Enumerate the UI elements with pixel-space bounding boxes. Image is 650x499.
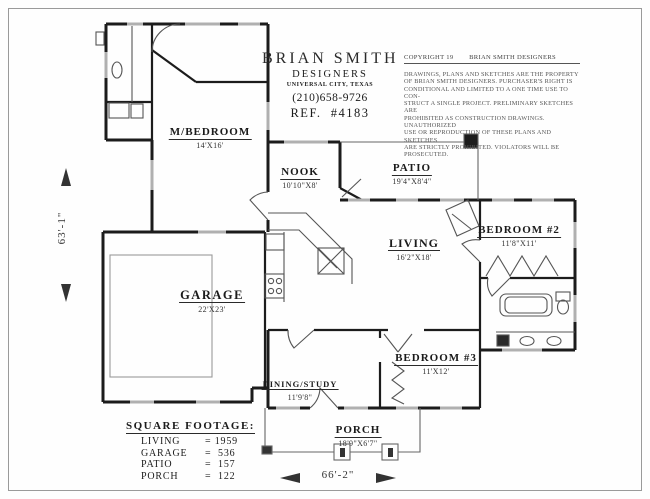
copyright-body: DRAWINGS, PLANS AND SKETCHES ARE THE PRO… [404,71,580,159]
square-footage-rows: LIVING = 1959 GARAGE = 536 PATIO = 157 P… [126,436,272,482]
table-row: GARAGE = 536 [141,448,272,460]
master-door-arc [250,192,268,220]
room-label-dining-study: DINING/STUDY 11'9'8" [262,374,339,402]
title-block: BRIAN SMITH DESIGNERS UNIVERSAL CITY, TE… [262,50,398,121]
drawing-sheet: BRIAN SMITH DESIGNERS UNIVERSAL CITY, TE… [0,0,650,499]
copyright-line: CONDITIONAL AND LIMITED TO A ONE TIME US… [404,86,580,101]
copyright-header: COPYRIGHT 19 BRIAN SMITH DESIGNERS [404,54,580,64]
bath-sink-2 [547,337,561,346]
room-label-living: LIVING 16'2"X18' [388,234,440,262]
bath-cabinet [497,335,509,346]
garage-slab-outline [110,255,212,377]
table-row: LIVING = 1959 [141,436,272,448]
bath-door-arc [487,278,510,296]
dim-arrow-up [61,168,71,186]
copyright-line: ARE STRICTLY PROHIBITED. VIOLATORS WILL … [404,144,580,159]
copyright-block: COPYRIGHT 19 BRIAN SMITH DESIGNERS DRAWI… [404,54,580,159]
brand-city: UNIVERSAL CITY, TEXAS [262,82,398,88]
copyright-line: OF BRIAN SMITH DESIGNERS. PURCHASER'S RI… [404,78,580,85]
overall-height-dimension: 63'-1" [56,197,70,259]
room-label-nook: NOOK 10'10"X8' [280,162,320,190]
room-label-bedroom-2: BEDROOM #2 11'8"X11' [477,220,561,248]
table-row: PATIO = 157 [141,459,272,471]
dryer [131,104,143,118]
room-label-master-bedroom: M/BEDROOM 14'X16' [169,122,252,150]
copyright-line: STRUCT A SINGLE PROJECT. PRELIMINARY SKE… [404,100,580,115]
utility-sink [112,62,122,78]
room-label-porch: PORCH 18'9"X6'7" [335,420,382,448]
copyright-year: COPYRIGHT 19 [404,54,453,61]
washer [109,103,129,118]
kitchen-pantry [266,234,284,250]
room-label-bedroom-3: BEDROOM #3 11'X12' [394,348,478,376]
brand-ref-number: REF. #4183 [262,106,398,121]
dim-arrow-left [280,473,300,483]
copyright-owner: BRIAN SMITH DESIGNERS [469,54,580,61]
dim-arrow-down [61,284,71,302]
dining-door-arc [288,330,314,348]
room-label-patio: PATIO 19'4"X8'4" [392,158,432,186]
fireplace [446,200,479,236]
room-label-garage: GARAGE 22'X23' [179,286,245,314]
table-row: PORCH = 122 [141,471,272,483]
bedroom2-closet-doors [486,256,558,276]
copyright-line: USE OR REPRODUCTION OF THESE PLANS AND S… [404,129,580,144]
exterior-vent [96,32,104,45]
overall-width-dimension: 66'-2" [306,469,370,481]
brand-phone: (210)658-9726 [262,92,398,104]
brand-name: BRIAN SMITH [262,50,398,68]
copyright-line: DRAWINGS, PLANS AND SKETCHES ARE THE PRO… [404,71,580,78]
stove-fixture [265,274,284,298]
square-footage-table: SQUARE FOOTAGE: LIVING = 1959 GARAGE = 5… [126,416,272,482]
copyright-line: PROHIBITED AS CONSTRUCTION DRAWINGS. UNA… [404,115,580,130]
utility-door-arc [152,24,180,52]
square-footage-title: SQUARE FOOTAGE: [126,420,255,434]
dim-arrow-right [376,473,396,483]
brand-subtitle: DESIGNERS [262,69,398,80]
bath-sink [520,337,534,346]
